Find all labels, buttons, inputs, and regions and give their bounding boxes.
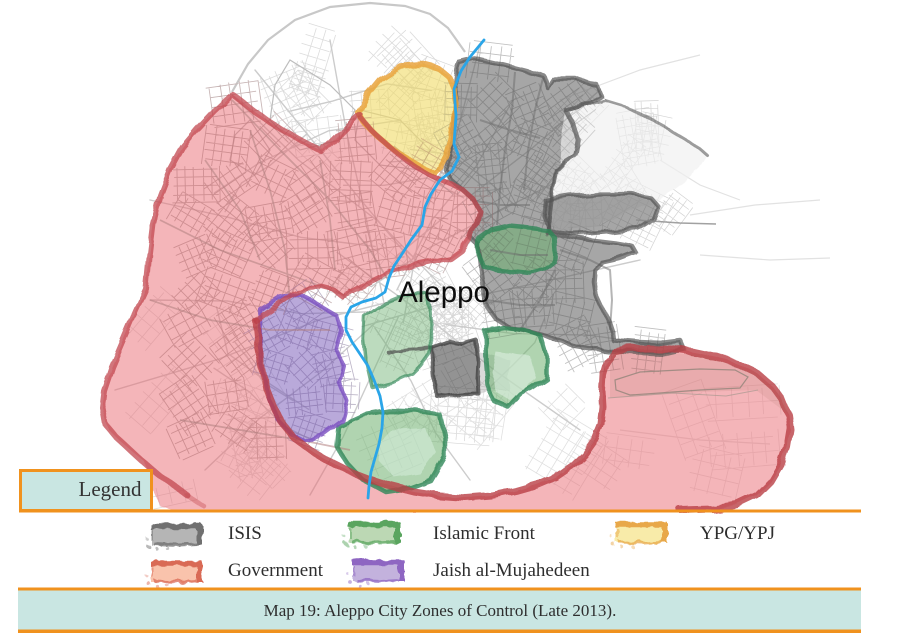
svg-text:Map 19: Aleppo City Zones of C: Map 19: Aleppo City Zones of Control (La… xyxy=(264,601,617,620)
svg-text:Islamic Front: Islamic Front xyxy=(433,523,536,544)
svg-text:Government: Government xyxy=(228,560,324,581)
svg-text:ISIS: ISIS xyxy=(228,523,262,544)
svg-text:YPG/YPJ: YPG/YPJ xyxy=(700,523,775,544)
svg-text:Jaish al-Mujahedeen: Jaish al-Mujahedeen xyxy=(433,560,590,581)
svg-text:Legend: Legend xyxy=(79,477,142,501)
svg-text:Aleppo: Aleppo xyxy=(398,276,490,309)
